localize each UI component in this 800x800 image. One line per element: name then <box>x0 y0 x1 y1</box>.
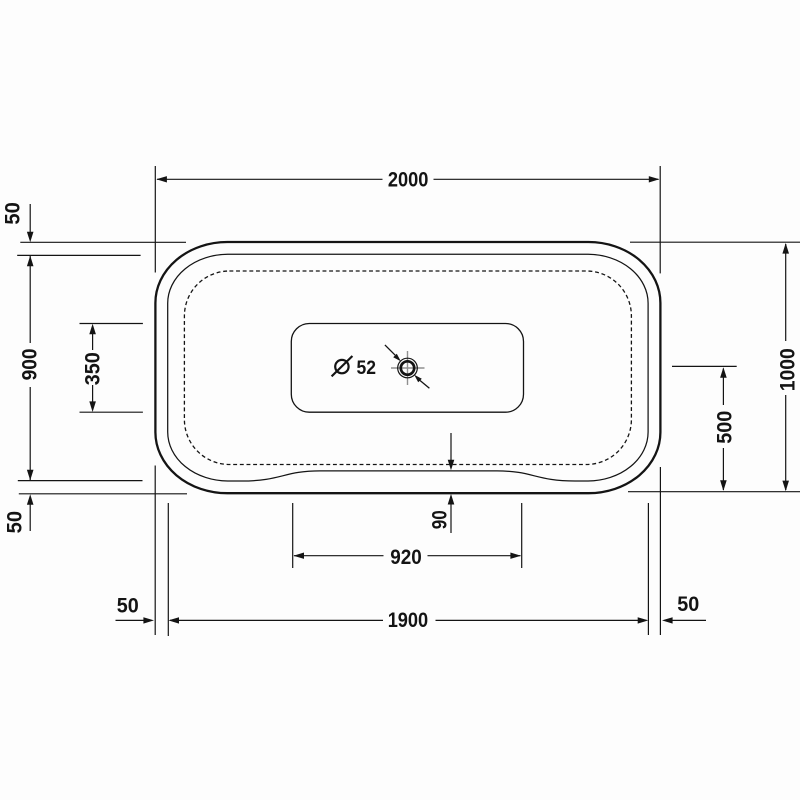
svg-text:50: 50 <box>0 202 24 225</box>
svg-text:1900: 1900 <box>388 608 429 632</box>
svg-text:50: 50 <box>677 592 699 616</box>
svg-text:52: 52 <box>357 357 377 379</box>
svg-text:90: 90 <box>427 510 451 529</box>
svg-text:350: 350 <box>81 352 105 385</box>
svg-text:1000: 1000 <box>775 348 799 391</box>
svg-text:50: 50 <box>117 593 139 617</box>
svg-text:900: 900 <box>17 348 41 380</box>
svg-text:500: 500 <box>712 411 736 444</box>
svg-text:50: 50 <box>3 511 27 534</box>
svg-text:2000: 2000 <box>388 167 429 191</box>
svg-text:920: 920 <box>390 545 422 569</box>
